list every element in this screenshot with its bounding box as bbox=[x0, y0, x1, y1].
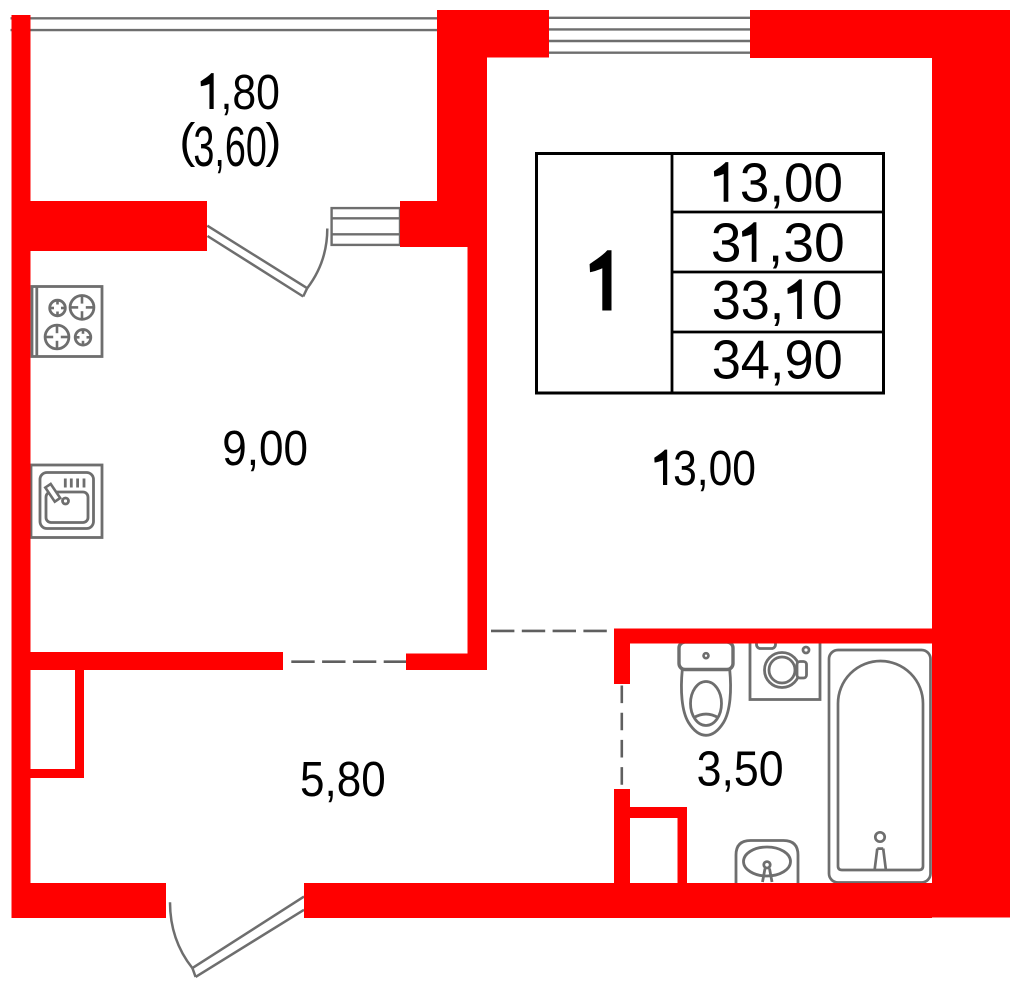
svg-text:3,00: 3,00 bbox=[740, 152, 843, 214]
svg-text:3,60: 3,60 bbox=[193, 115, 267, 179]
svg-text:3,00: 3,00 bbox=[673, 442, 756, 496]
svg-text:33,: 33, bbox=[712, 269, 785, 331]
svg-text:9,00: 9,00 bbox=[222, 422, 308, 476]
svg-text:): ) bbox=[265, 115, 281, 168]
svg-text:5,80: 5,80 bbox=[300, 753, 386, 807]
svg-text:,30: ,30 bbox=[768, 211, 845, 273]
svg-text:0: 0 bbox=[812, 269, 843, 331]
svg-text:,80: ,80 bbox=[221, 66, 280, 120]
svg-text:3,50: 3,50 bbox=[697, 742, 784, 796]
svg-text:34,90: 34,90 bbox=[712, 329, 843, 391]
svg-text:3: 3 bbox=[711, 211, 742, 273]
